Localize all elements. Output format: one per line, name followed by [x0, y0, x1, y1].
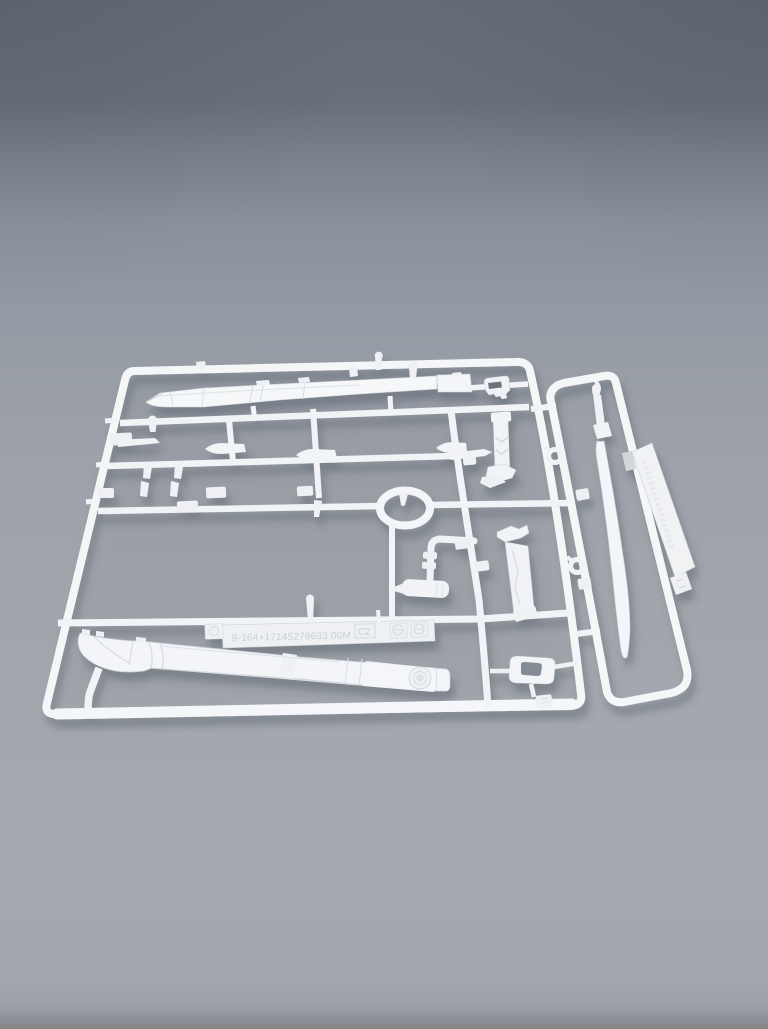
- svg-text:C2: C2: [358, 627, 371, 638]
